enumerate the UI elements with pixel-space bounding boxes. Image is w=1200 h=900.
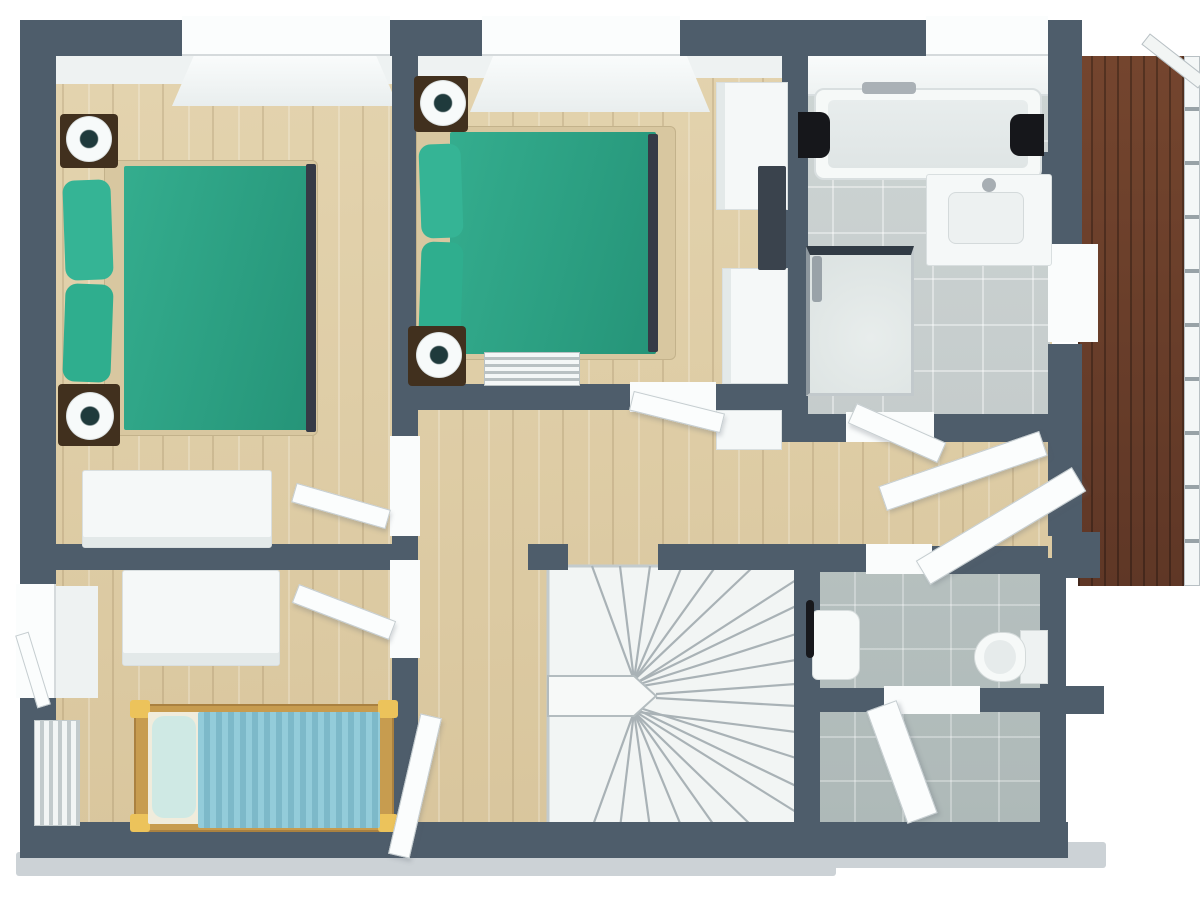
kids-bed-knob-1 xyxy=(130,700,150,718)
bedroom1-bed-footboard xyxy=(306,164,316,432)
toilet-seat xyxy=(984,640,1016,674)
wc-basin-tap xyxy=(806,600,814,658)
bedroom1-dresser xyxy=(82,470,272,548)
bedroom1-pillow-1 xyxy=(62,179,113,281)
window-sill-bedroom2 xyxy=(470,54,710,112)
balcony-railing xyxy=(1184,56,1200,586)
wall-right-bathroom xyxy=(1048,20,1082,248)
doorway-bedroom1 xyxy=(390,436,420,536)
doorway-kids xyxy=(390,560,420,658)
wall-left-upper xyxy=(20,20,56,586)
kids-bed-knob-3 xyxy=(130,814,150,832)
kids-bed-pillow xyxy=(152,716,196,818)
kids-dresser xyxy=(122,570,280,666)
bathtub-faucet xyxy=(862,82,916,94)
bedroom1-pillow-2 xyxy=(62,283,113,383)
kids-radiator xyxy=(34,720,80,826)
bedroom2-cabinet-dark xyxy=(758,166,786,270)
wall-stub-east xyxy=(1040,686,1104,714)
window-bedroom1 xyxy=(182,16,390,56)
shower xyxy=(806,246,914,396)
bedroom1-lamp-2 xyxy=(66,392,114,440)
wc-washbasin xyxy=(812,610,860,680)
vanity-sink xyxy=(948,192,1024,244)
bedroom2-lamp-2 xyxy=(416,332,462,378)
wall-bedroom2-bottom-left xyxy=(418,384,632,410)
bedroom1-lamp-1 xyxy=(66,116,112,162)
bedroom2-radiator xyxy=(484,352,580,386)
bathtub-basin xyxy=(828,100,1028,168)
kids-bed-blanket xyxy=(198,712,380,828)
wall-stairs-top-left xyxy=(528,544,568,570)
wall-top-1 xyxy=(20,20,182,56)
staircase xyxy=(548,566,796,828)
bedroom2-bed-duvet xyxy=(450,132,656,354)
bedroom2-pillow-1 xyxy=(418,143,463,238)
window-bathroom xyxy=(926,16,1048,56)
hall-cabinet xyxy=(716,410,782,450)
doorway-balcony xyxy=(1048,244,1098,342)
kids-bed-knob-2 xyxy=(378,700,398,718)
vanity-faucet xyxy=(982,178,996,192)
window-sill-kids xyxy=(56,586,98,698)
window-sill-bedroom1 xyxy=(172,54,398,106)
window-bedroom2 xyxy=(482,16,680,56)
shower-head xyxy=(812,256,822,302)
floor-plan xyxy=(0,0,1200,900)
bedroom2-lamp-1 xyxy=(420,80,466,126)
wall-stairs-top-right xyxy=(658,544,810,570)
wall-right-mid xyxy=(1048,344,1082,420)
bedroom1-bed-duvet xyxy=(124,166,310,430)
wall-wc-partition-right xyxy=(978,688,1042,712)
wall-bathroom-bottom-left xyxy=(782,414,848,442)
bedroom2-bed-footboard xyxy=(648,134,658,352)
bedroom2-wardrobe-2 xyxy=(722,268,788,384)
towel-right xyxy=(1010,114,1044,156)
towel-left xyxy=(798,112,830,158)
